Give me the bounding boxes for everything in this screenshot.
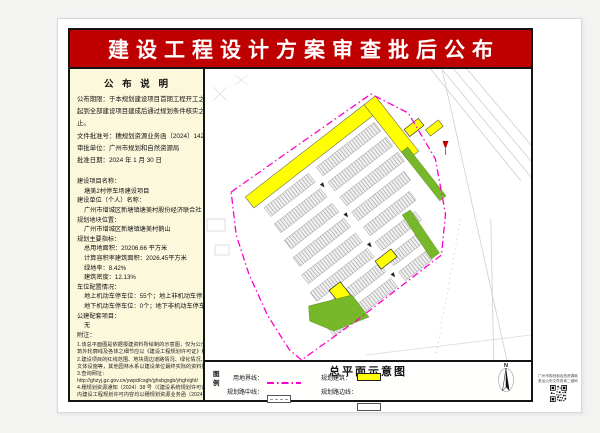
note-line: 3.查询网址： <box>77 371 198 378</box>
qr-caption-1: 广州市规划和自然资源局 <box>534 374 582 379</box>
document-frame: 建设工程设计方案审查批后公布 公 布 说 明 公布期限：于本规划建设项目首期工程… <box>68 28 533 402</box>
legend-item-boundary: 用地界线： <box>233 373 263 382</box>
notice-line: 审批单位：广州市规划和自然资源局 <box>77 143 198 155</box>
notice-line: 批准日期：2024 年 1 月 30 日 <box>77 155 198 167</box>
detail-line: 计算容积率建筑面积：2026.45平方米 <box>77 254 198 264</box>
notice-heading: 公 布 说 明 <box>77 76 198 90</box>
notice-line: 文件批准号：穗规划资源业务函〔2024〕1426号 <box>77 131 198 143</box>
detail-line: 建设单位（个人）名称： <box>77 196 198 206</box>
legend-item-building: 规划建筑： <box>321 373 351 382</box>
detail-line: 绿地率：8.42% <box>77 264 198 274</box>
detail-line: 塘美2村停车场建设项目 <box>77 187 198 197</box>
detail-line: 广州市增城区新塘镇塘美村鹅山 <box>77 225 198 235</box>
legend-item-edgeline: 规划路边线： <box>321 387 357 396</box>
detail-line: 附注： <box>77 331 198 341</box>
notice-line: 止。 <box>77 118 198 130</box>
note-line: http://ghzyj.gz.gov.cn/ywpd/csgh/ghsbgsg… <box>77 378 198 385</box>
document-body: 公 布 说 明 公布期限：于本规划建设项目首期工程开工之日起到全部建设项目建成后… <box>70 69 531 400</box>
title-banner: 建设工程设计方案审查批后公布 <box>70 30 531 69</box>
note-line: 文体设施等，其他园林水系以建设单位最终实际的资料批复为准。 <box>77 364 198 371</box>
edgeline-swatch <box>357 403 381 411</box>
detail-line: 广州市增城区新塘镇塘美村股份经济联合社 <box>77 206 198 216</box>
detail-line: 公建配套项目： <box>77 312 198 322</box>
notice-line: 起到全部建设项目建成后通过规划条件核实之日 <box>77 106 198 118</box>
notice-intro: 公布期限：于本规划建设项目首期工程开工之日起到全部建设项目建成后通过规划条件核实… <box>77 94 198 167</box>
project-details: 建设项目名称：塘美2村停车场建设项目建设单位（个人）名称：广州市增城区新塘镇塘美… <box>77 177 198 340</box>
entrance-label-box <box>426 120 444 136</box>
site-plan-area <box>205 69 531 360</box>
detail-line: 无 <box>77 321 198 331</box>
page: 建设工程设计方案审查批后公布 公 布 说 明 公布期限：于本规划建设项目首期工程… <box>0 0 600 433</box>
note-line: 筑外轮廓线及各体之细节应以《建设工程规划许可证》核定为准。 <box>77 349 198 356</box>
site-plan-drawing <box>205 69 531 360</box>
page-title: 建设工程设计方案审查批后公布 <box>108 34 500 64</box>
plan-column: 图例 总平面示意图 用地界线： 规划建筑： 规划路中线： 规划路边线： N <box>205 69 531 400</box>
qr-caption-2: 批后公布文件查询二维码 <box>534 379 582 384</box>
note-line: 4.穗规划资源通知〔2024〕38 号（《建设系统规划许可证》）所批复的内容 <box>77 385 198 392</box>
note-line: 内建设工程规划许可内容均以穗规划资源业务函〔2024〕1426号批复文件为准。 <box>77 392 198 399</box>
detail-line: 地上机动车停车位：55个；地上非机动车停车位：0个； <box>77 292 198 302</box>
boundary-swatch <box>267 374 301 392</box>
notice-line: 公布期限：于本规划建设项目首期工程开工之日 <box>77 94 198 106</box>
legend-bar: 图例 总平面示意图 用地界线： 规划建筑： 规划路中线： 规划路边线： N <box>205 360 531 400</box>
note-line: 2.建设项目的红线范围、地块周边道路情况、绿化情况、园林水系、水系、 <box>77 357 198 364</box>
detail-line: 地下机动车停车位：0个；地下非机动车停车位：0个 <box>77 302 198 312</box>
north-label: N <box>495 363 517 369</box>
legend-item-centerline: 规划路中线： <box>227 387 263 396</box>
detail-line: 车位配置情况： <box>77 283 198 293</box>
detail-line: 规划地块位置： <box>77 216 198 226</box>
red-marker <box>442 141 448 155</box>
qr-block: 广州市规划和自然资源局 批后公布文件查询二维码 <box>534 374 582 407</box>
detail-line: 总用地面积：20206.66 平方米 <box>77 244 198 254</box>
detail-line: 建筑密度：12.13% <box>77 273 198 283</box>
north-arrow-icon: N <box>495 364 517 398</box>
detail-line: 规划主要指标： <box>77 235 198 245</box>
qr-code <box>550 385 567 402</box>
centerline-swatch <box>267 395 291 403</box>
notice-panel: 公 布 说 明 公布期限：于本规划建设项目首期工程开工之日起到全部建设项目建成后… <box>70 69 205 400</box>
notes-section: 1.该总平面图是依据报建资料所绘制的示意图，仅为公示使用，图上标注的建筑外轮廓线… <box>77 342 198 399</box>
detail-line: 建设项目名称： <box>77 177 198 187</box>
building-swatch <box>357 373 381 381</box>
